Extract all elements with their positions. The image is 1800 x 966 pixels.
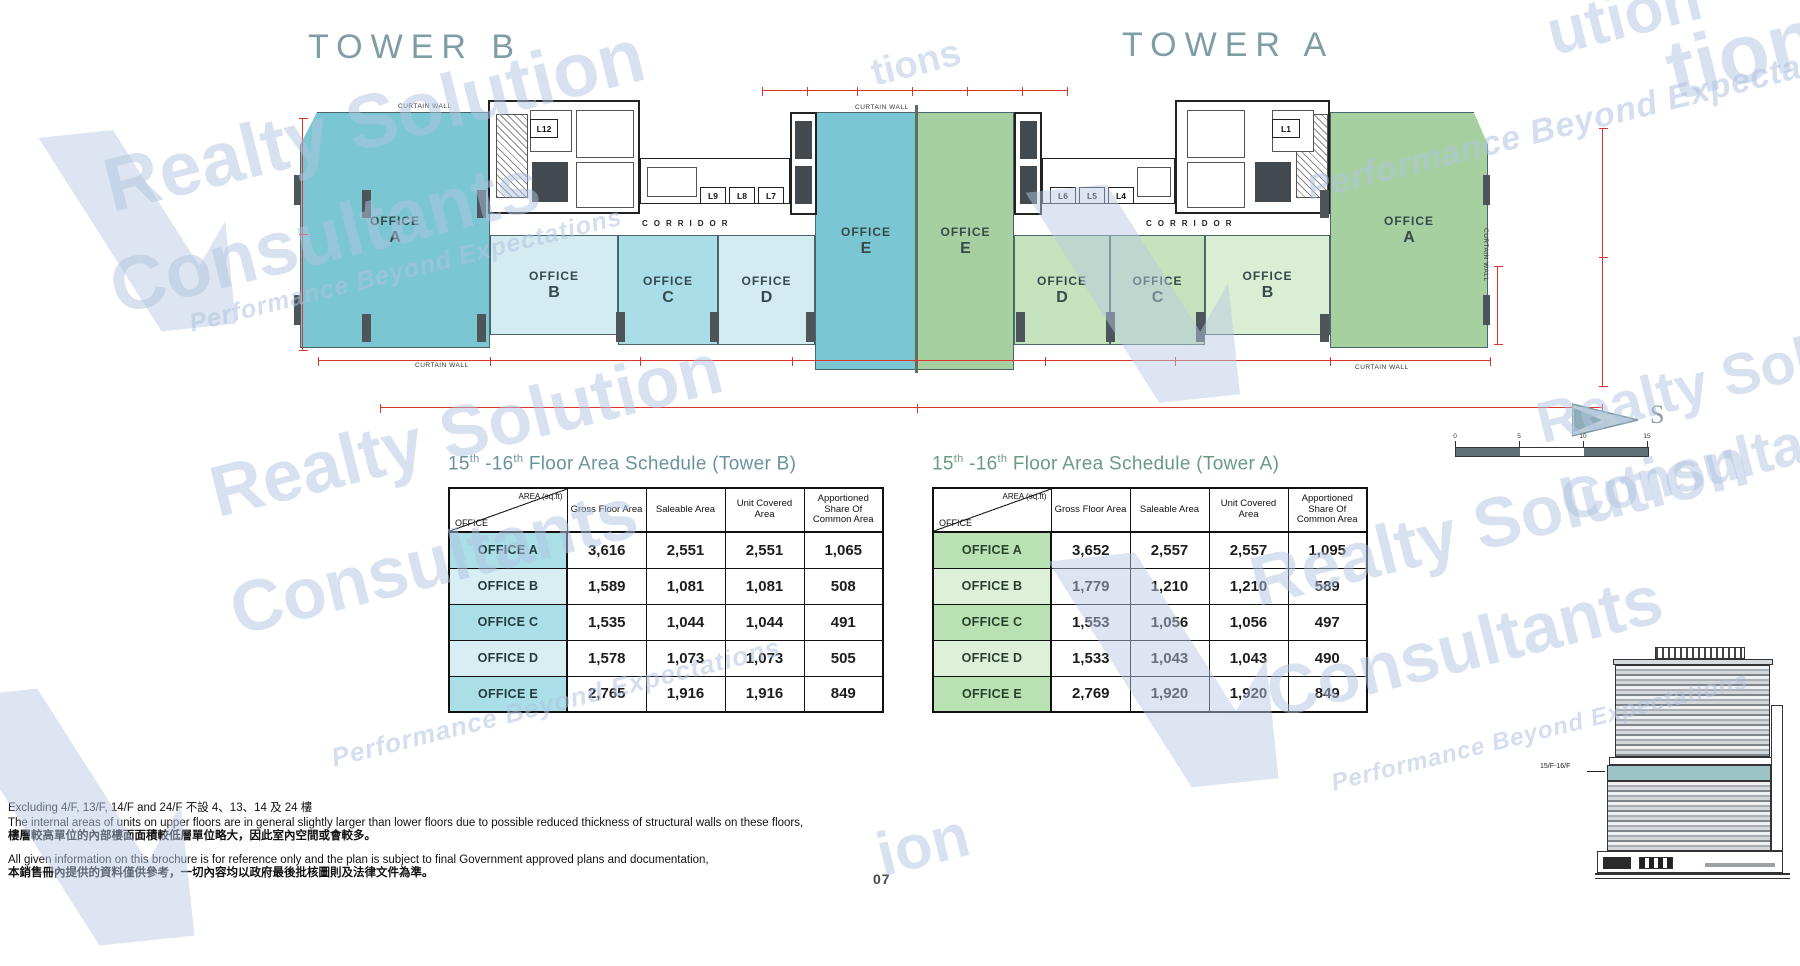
corner-office-label: OFFICE — [939, 518, 972, 528]
area-value: 1,553 — [1051, 604, 1130, 640]
schedule-title-tower-b: 15th -16th Floor Area Schedule (Tower B) — [448, 453, 796, 475]
table-row: OFFICE B 1,589 1,081 1,081 508 — [449, 568, 883, 604]
office-label: OFFICE — [1384, 214, 1434, 228]
table-row: OFFICE A 3,616 2,551 2,551 1,065 — [449, 532, 883, 568]
column — [1320, 314, 1329, 342]
elevation-floor-label: 15/F-16/F — [1540, 763, 1570, 770]
curtain-wall-label: CURTAIN WALL — [398, 103, 452, 110]
ac-division-box — [647, 167, 697, 197]
column — [1196, 312, 1205, 342]
area-value: 3,652 — [1051, 532, 1130, 568]
area-value: 1,065 — [804, 532, 883, 568]
footnote-line: 樓層較高單位的內部樓面面積較低層單位略大，因此室內空間或會較多。 — [8, 831, 376, 843]
lift-chip: L6 — [1050, 187, 1076, 204]
scale-bar — [1455, 447, 1649, 457]
office-row-label: OFFICE E — [449, 676, 567, 712]
office-letter: D — [1056, 289, 1068, 307]
corridor-label: CORRIDOR — [1146, 219, 1238, 228]
column — [362, 190, 371, 218]
curtain-wall-label: CURTAIN WALL — [415, 362, 469, 369]
lift-chip: L1 — [1272, 119, 1300, 138]
floor-plan: OFFICE A OFFICE B OFFICE C OFFICE D OFFI… — [0, 0, 1800, 460]
office-block-b-a: OFFICE A — [300, 112, 490, 348]
table-row: OFFICE A 3,652 2,557 2,557 1,095 — [933, 532, 1367, 568]
area-value: 1,095 — [1288, 532, 1367, 568]
lift-shaft — [795, 121, 812, 159]
lift-chip: L4 — [1108, 187, 1134, 204]
lower-floors — [1607, 781, 1771, 851]
office-label: OFFICE — [370, 214, 420, 228]
area-value: 1,081 — [725, 568, 804, 604]
area-value: 1,056 — [1209, 604, 1288, 640]
scale-tick — [1583, 441, 1584, 447]
office-row-label: OFFICE D — [933, 640, 1051, 676]
upper-floors — [1615, 665, 1770, 757]
area-value: 2,551 — [725, 532, 804, 568]
core-cell — [576, 162, 634, 208]
office-label: OFFICE — [941, 225, 991, 239]
corner-cell: AREA (sq.ft) OFFICE — [449, 488, 567, 532]
area-value: 2,769 — [1051, 676, 1130, 712]
office-row-label: OFFICE A — [449, 532, 567, 568]
column — [1483, 295, 1490, 325]
entrance-detail — [1603, 857, 1631, 869]
area-value: 849 — [1288, 676, 1367, 712]
office-row-label: OFFICE B — [933, 568, 1051, 604]
area-value: 3,616 — [567, 532, 646, 568]
footnote-line: Excluding 4/F, 13/F, 14/F and 24/F 不設 4、… — [8, 803, 312, 815]
area-value: 2,551 — [646, 532, 725, 568]
table-row: OFFICE E 2,765 1,916 1,916 849 — [449, 676, 883, 712]
lift-shaft-block — [1014, 112, 1042, 215]
office-letter: A — [1403, 229, 1415, 247]
area-value: 490 — [1288, 640, 1367, 676]
column-header: Apportioned Share Of Common Area — [1288, 488, 1367, 532]
lift-shaft-block — [790, 112, 817, 215]
column — [362, 314, 371, 342]
office-letter: E — [960, 240, 971, 258]
area-value: 1,044 — [646, 604, 725, 640]
area-value: 508 — [804, 568, 883, 604]
entrance-detail — [1639, 857, 1673, 869]
ground-line — [1595, 873, 1790, 879]
scale-number: 15 — [1643, 433, 1650, 440]
column-header: Unit Covered Area — [725, 488, 804, 532]
column — [616, 312, 625, 342]
column — [294, 175, 301, 205]
area-value: 1,920 — [1209, 676, 1288, 712]
column-header: Saleable Area — [646, 488, 725, 532]
dimension-line — [318, 360, 1490, 361]
office-label: OFFICE — [529, 269, 579, 283]
compass-label: S — [1650, 400, 1664, 430]
office-letter: C — [1152, 289, 1164, 307]
dimension-line — [302, 118, 303, 350]
podium-line — [1705, 863, 1775, 867]
office-row-label: OFFICE B — [449, 568, 567, 604]
office-block-a-c: OFFICE C — [1110, 235, 1205, 345]
curtain-wall-label: CURTAIN WALL — [855, 104, 909, 111]
office-label: OFFICE — [742, 274, 792, 288]
footnote-line: The internal areas of units on upper flo… — [8, 818, 803, 830]
office-block-a-b: OFFICE B — [1205, 235, 1330, 335]
column — [477, 190, 486, 218]
area-value: 2,557 — [1209, 532, 1288, 568]
ac-division-box — [1137, 167, 1171, 197]
office-row-label: OFFICE A — [933, 532, 1051, 568]
column — [1483, 175, 1490, 205]
office-letter: C — [662, 289, 674, 307]
office-block-b-d: OFFICE D — [718, 235, 815, 345]
party-wall — [915, 105, 918, 373]
office-label: OFFICE — [1037, 274, 1087, 288]
area-value: 497 — [1288, 604, 1367, 640]
office-letter: B — [1262, 284, 1274, 302]
scale-tick — [1647, 441, 1648, 447]
roof-detail — [1655, 647, 1745, 659]
column-header: Gross Floor Area — [567, 488, 646, 532]
table-row: OFFICE C 1,535 1,044 1,044 491 — [449, 604, 883, 640]
area-value: 1,920 — [1130, 676, 1209, 712]
table-row: OFFICE B 1,779 1,210 1,210 589 — [933, 568, 1367, 604]
office-letter: A — [389, 229, 401, 247]
column — [1016, 312, 1025, 342]
area-value: 1,916 — [646, 676, 725, 712]
office-block-b-c: OFFICE C — [618, 235, 718, 345]
curtain-wall-label: CURTAIN WALL — [1355, 364, 1409, 371]
column — [806, 312, 815, 342]
footnote-line: 本銷售冊內提供的資料僅供參考，一切內容均以政府最後批核圖則及法律文件為準。 — [8, 868, 434, 880]
lift-shaft — [1020, 121, 1037, 159]
column-header: Unit Covered Area — [1209, 488, 1288, 532]
dimension-line — [380, 407, 1602, 408]
lift-chip: L12 — [530, 119, 558, 138]
area-value: 1,535 — [567, 604, 646, 640]
core-block-a — [1175, 100, 1330, 214]
area-value: 505 — [804, 640, 883, 676]
schedule-title-tower-a: 15th -16th Floor Area Schedule (Tower A) — [932, 453, 1279, 475]
elevation-label-leader — [1587, 771, 1605, 772]
office-label: OFFICE — [643, 274, 693, 288]
dimension-line — [1602, 128, 1603, 386]
lift-shaft — [532, 162, 568, 202]
office-letter: E — [861, 240, 872, 258]
corner-area-label: AREA (sq.ft) — [1002, 492, 1046, 501]
core-block-b — [488, 100, 640, 214]
office-letter: B — [548, 284, 560, 302]
column-header: Apportioned Share Of Common Area — [804, 488, 883, 532]
column — [294, 295, 301, 325]
table-row: OFFICE D 1,533 1,043 1,043 490 — [933, 640, 1367, 676]
side-wing — [1771, 705, 1783, 851]
area-value: 1,081 — [646, 568, 725, 604]
stair-hatch — [496, 114, 528, 198]
office-row-label: OFFICE D — [449, 640, 567, 676]
area-value: 2,557 — [1130, 532, 1209, 568]
area-value: 1,073 — [646, 640, 725, 676]
area-value: 1,043 — [1209, 640, 1288, 676]
area-value: 1,044 — [725, 604, 804, 640]
corridor-label: CORRIDOR — [642, 219, 734, 228]
office-row-label: OFFICE E — [933, 676, 1051, 712]
core-cell — [1187, 110, 1245, 158]
area-value: 491 — [804, 604, 883, 640]
column — [710, 312, 719, 342]
office-block-a-d: OFFICE D — [1014, 235, 1110, 345]
area-value: 1,578 — [567, 640, 646, 676]
area-value: 1,073 — [725, 640, 804, 676]
highlighted-floors-band — [1607, 765, 1771, 781]
office-letter: D — [761, 289, 773, 307]
table-row: OFFICE C 1,553 1,056 1,056 497 — [933, 604, 1367, 640]
lift-shaft — [1020, 166, 1037, 204]
office-label: OFFICE — [1243, 269, 1293, 283]
lift-shaft — [795, 166, 812, 204]
scale-tick — [1519, 441, 1520, 447]
table-row: OFFICE D 1,578 1,073 1,073 505 — [449, 640, 883, 676]
lift-shaft — [1255, 162, 1291, 202]
footnote-line: All given information on this brochure i… — [8, 855, 709, 867]
scale-tick — [1455, 441, 1456, 447]
area-value: 1,589 — [567, 568, 646, 604]
column — [477, 314, 486, 342]
table-row: OFFICE E 2,769 1,920 1,920 849 — [933, 676, 1367, 712]
dimension-line — [762, 90, 1067, 91]
scale-number: 10 — [1579, 433, 1586, 440]
page-number: 07 — [873, 871, 891, 887]
core-cell — [1187, 162, 1245, 208]
area-value: 1,056 — [1130, 604, 1209, 640]
column — [1106, 312, 1115, 342]
column-header: Gross Floor Area — [1051, 488, 1130, 532]
column-header: Saleable Area — [1130, 488, 1209, 532]
office-label: OFFICE — [841, 225, 891, 239]
lift-chip: L5 — [1079, 187, 1105, 204]
area-value: 1,210 — [1209, 568, 1288, 604]
corner-office-label: OFFICE — [455, 518, 488, 528]
lift-chip: L8 — [729, 187, 755, 204]
office-row-label: OFFICE C — [933, 604, 1051, 640]
scale-number: 0 — [1453, 433, 1457, 440]
area-value: 1,043 — [1130, 640, 1209, 676]
area-table-tower-a: AREA (sq.ft) OFFICE Gross Floor Area Sal… — [932, 487, 1368, 713]
lift-chip: L9 — [700, 187, 726, 204]
scale-number: 5 — [1517, 433, 1521, 440]
office-block-b-b: OFFICE B — [490, 235, 618, 335]
corner-cell: AREA (sq.ft) OFFICE — [933, 488, 1051, 532]
refuge-floor — [1609, 757, 1775, 765]
office-block-a-a: OFFICE A — [1330, 112, 1488, 348]
core-cell — [576, 110, 634, 158]
corner-area-label: AREA (sq.ft) — [518, 492, 562, 501]
building-elevation: 15/F-16/F — [1595, 645, 1793, 885]
area-value: 1,210 — [1130, 568, 1209, 604]
area-value: 1,916 — [725, 676, 804, 712]
area-value: 1,533 — [1051, 640, 1130, 676]
lift-chip: L7 — [758, 187, 784, 204]
office-row-label: OFFICE C — [449, 604, 567, 640]
office-label: OFFICE — [1133, 274, 1183, 288]
area-value: 1,779 — [1051, 568, 1130, 604]
area-value: 2,765 — [567, 676, 646, 712]
dimension-line — [1497, 266, 1498, 344]
column — [1320, 190, 1329, 218]
curtain-wall-label: CURTAIN WALL — [1482, 228, 1489, 282]
area-value: 589 — [1288, 568, 1367, 604]
area-value: 849 — [804, 676, 883, 712]
area-table-tower-b: AREA (sq.ft) OFFICE Gross Floor Area Sal… — [448, 487, 884, 713]
office-block-a-e: OFFICE E — [917, 112, 1014, 370]
office-block-b-e: OFFICE E — [815, 112, 917, 370]
